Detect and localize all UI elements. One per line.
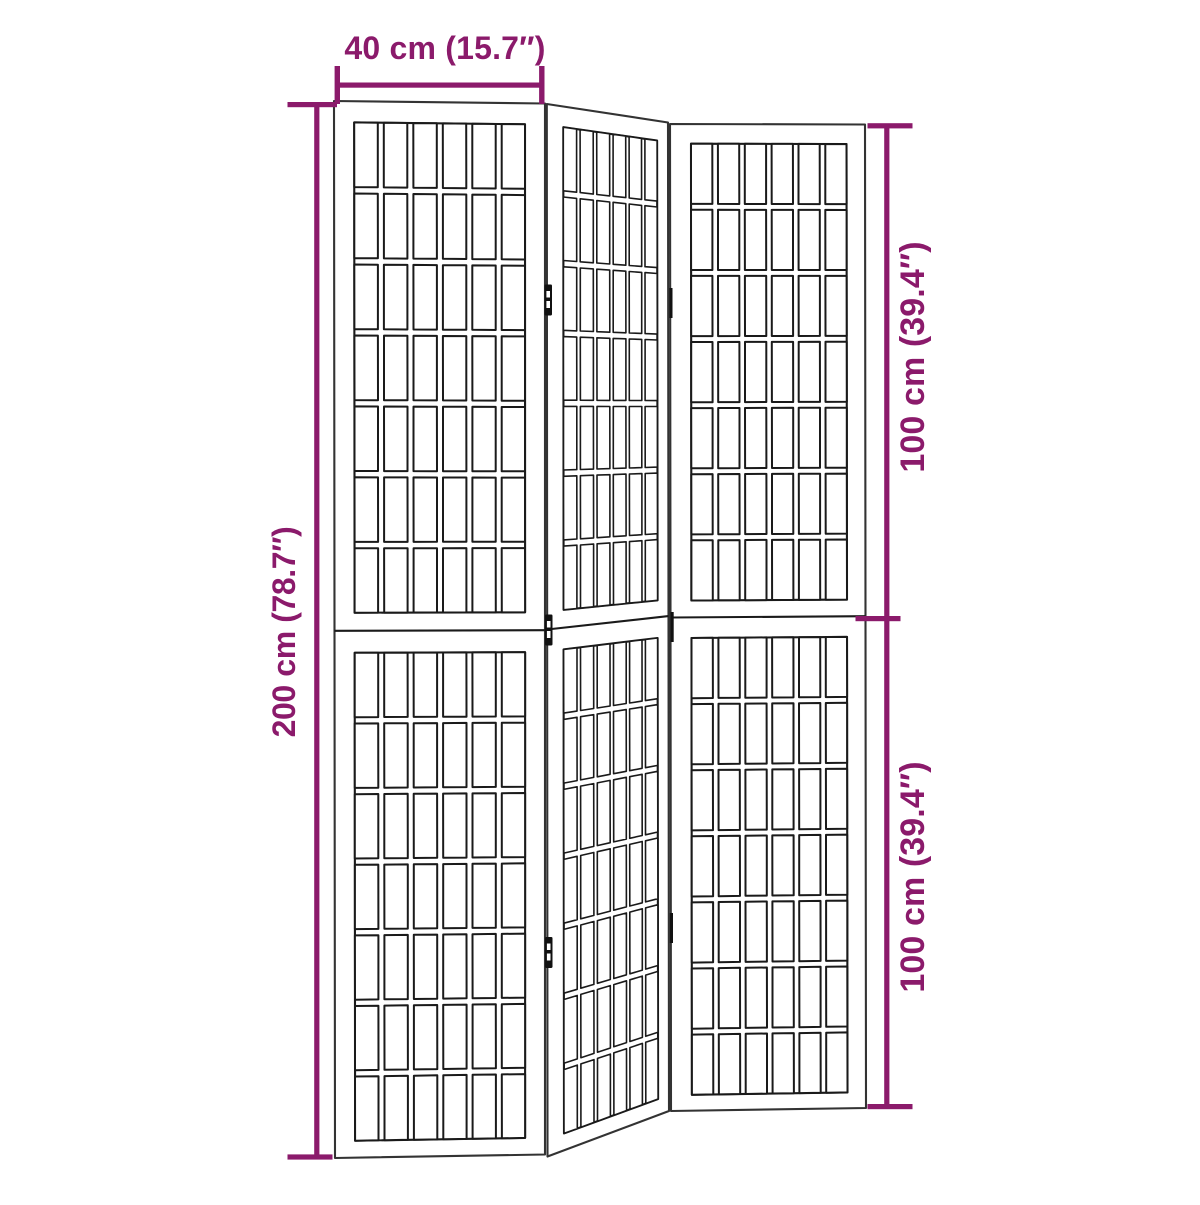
svg-text:100 cm (39.4″): 100 cm (39.4″)	[894, 761, 932, 992]
svg-text:100 cm (39.4″): 100 cm (39.4″)	[894, 241, 932, 472]
svg-text:200 cm (78.7″): 200 cm (78.7″)	[266, 527, 302, 738]
svg-text:40 cm (15.7″): 40 cm (15.7″)	[344, 30, 545, 66]
